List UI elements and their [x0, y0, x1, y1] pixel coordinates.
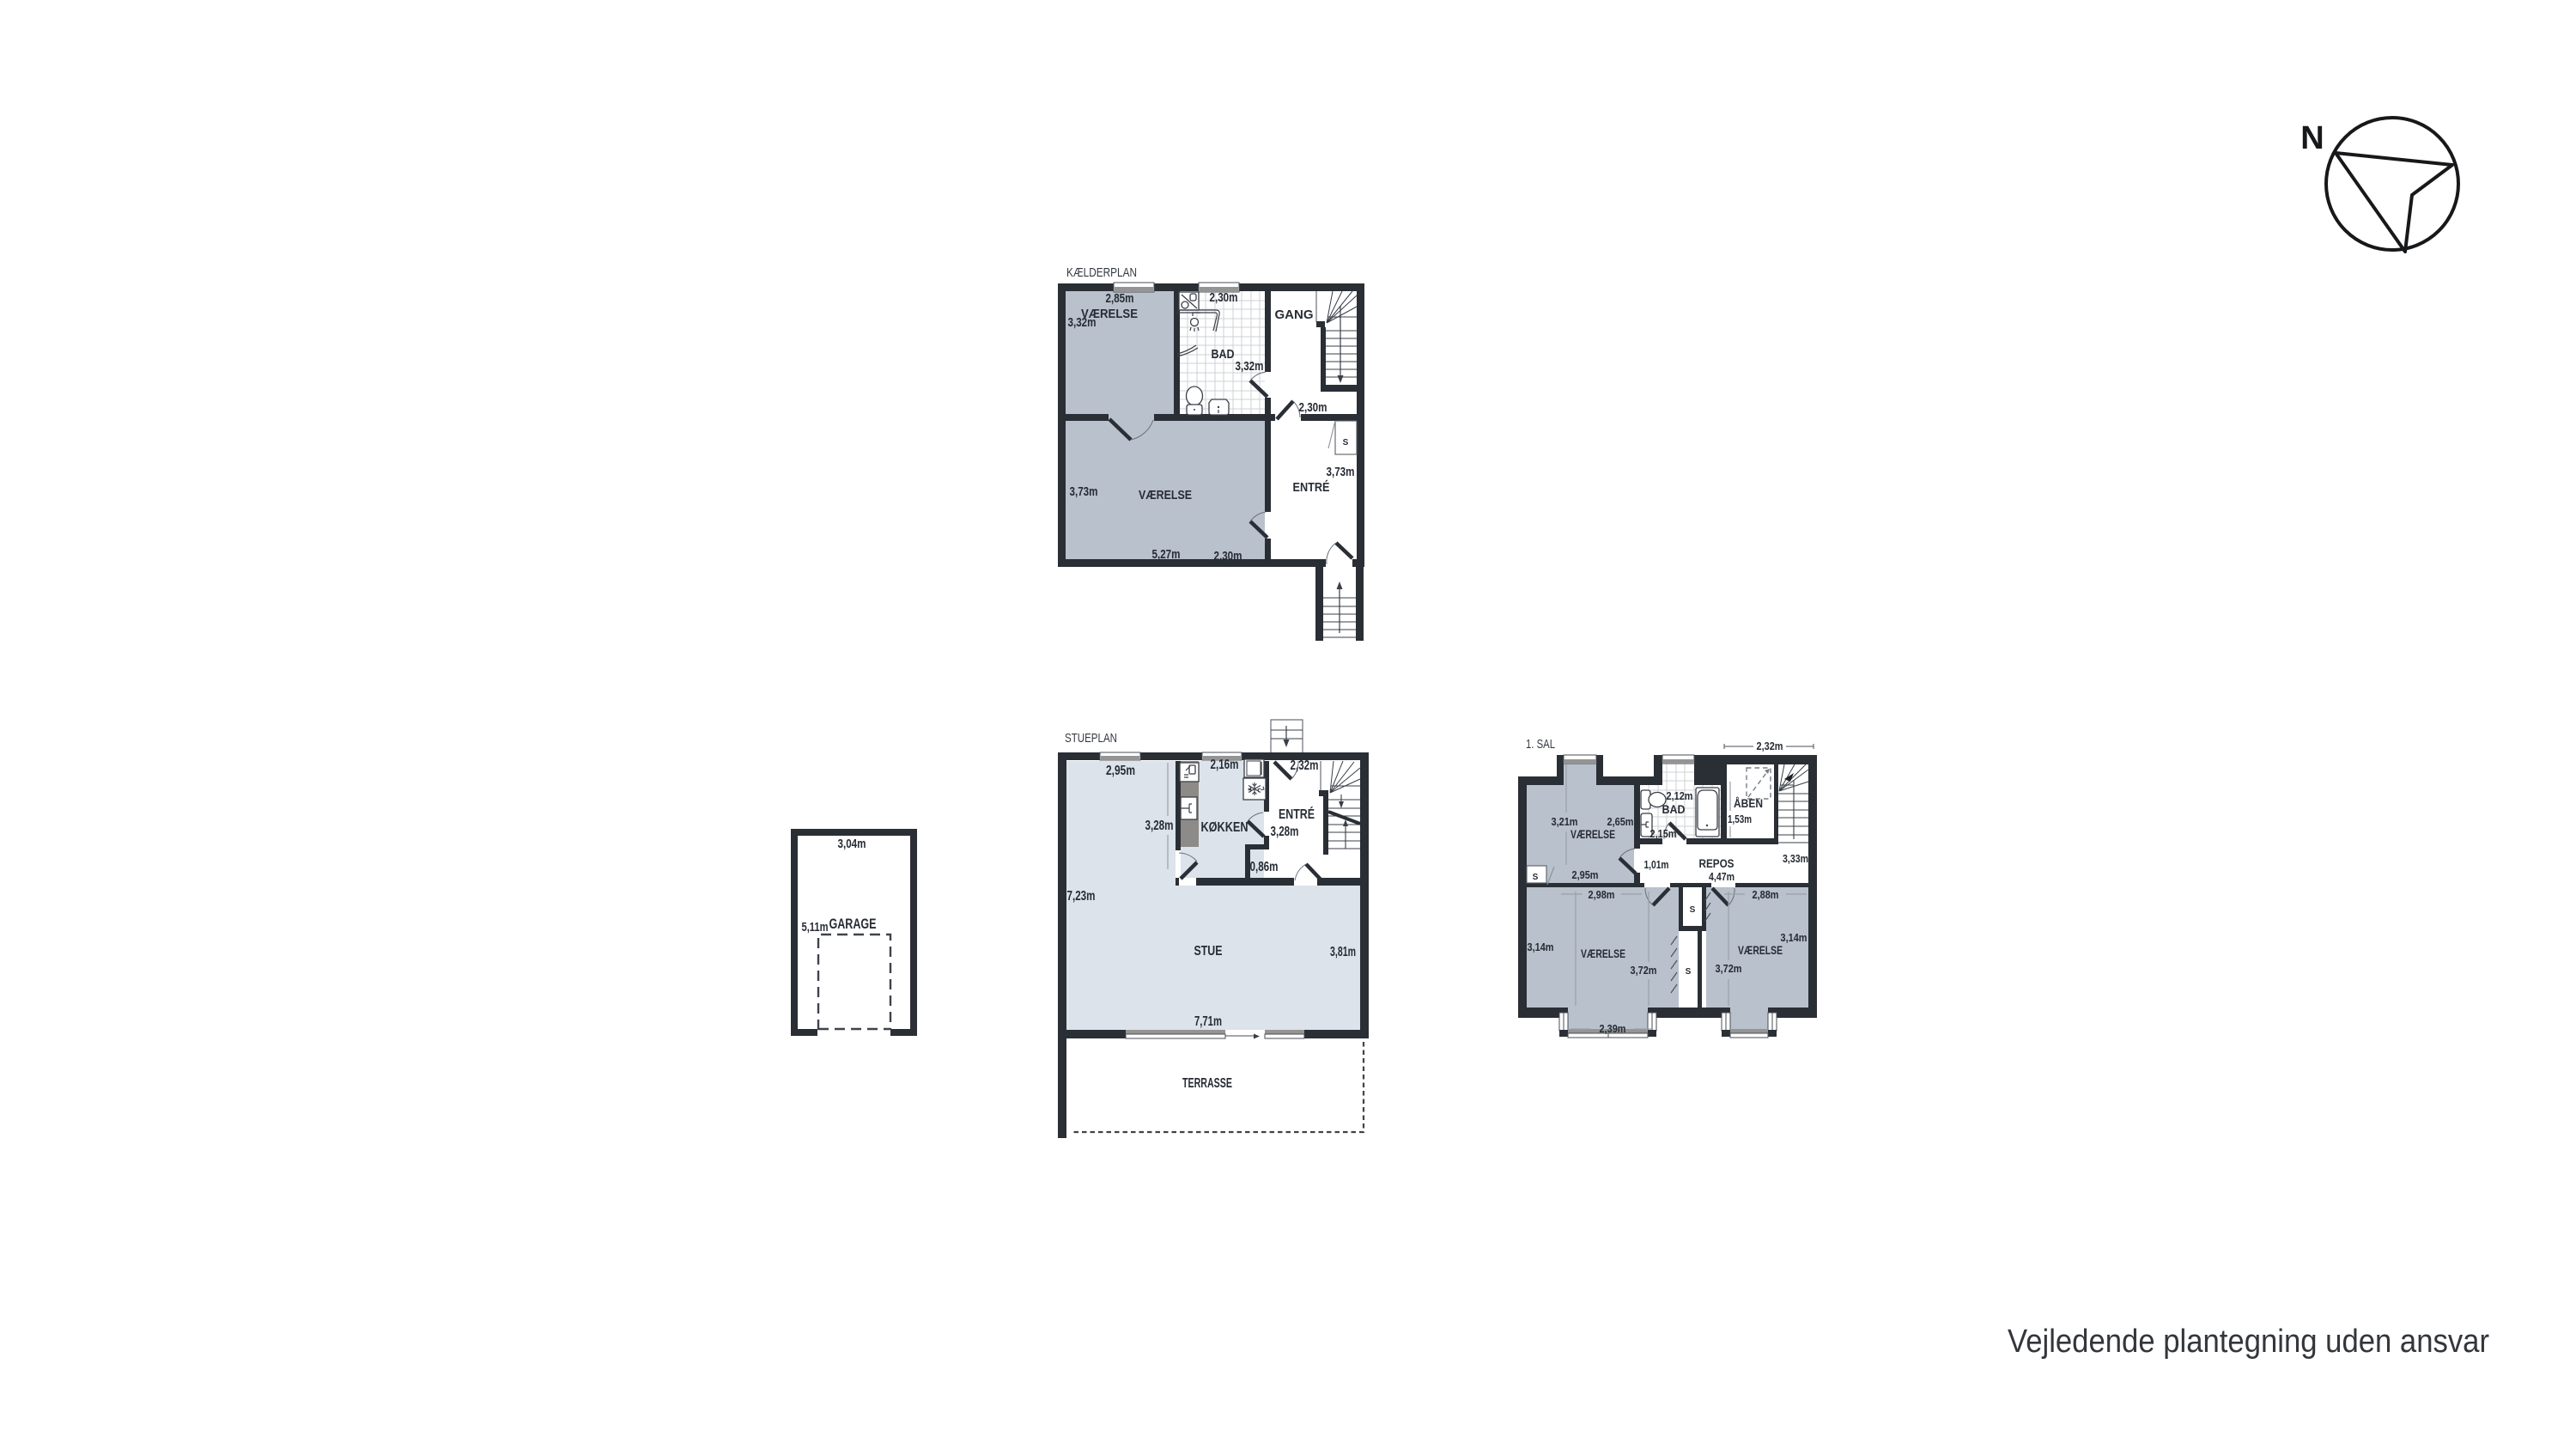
svg-text:S: S	[1343, 438, 1349, 447]
svg-text:2,98m: 2,98m	[1589, 888, 1615, 901]
svg-text:BAD: BAD	[1662, 803, 1686, 816]
svg-text:VÆRELSE: VÆRELSE	[1571, 828, 1615, 841]
svg-text:2,30m: 2,30m	[1299, 400, 1327, 415]
svg-text:3,81m: 3,81m	[1330, 945, 1356, 959]
svg-text:2,39m: 2,39m	[1600, 1022, 1626, 1035]
svg-text:2,85m: 2,85m	[1106, 291, 1134, 306]
svg-text:2,32m: 2,32m	[1757, 740, 1783, 752]
svg-text:ÅBEN: ÅBEN	[1734, 797, 1763, 810]
svg-text:KÆLDERPLAN: KÆLDERPLAN	[1066, 265, 1137, 280]
svg-text:3,32m: 3,32m	[1068, 315, 1097, 330]
svg-text:1,01m: 1,01m	[1644, 858, 1669, 871]
svg-text:2,88m: 2,88m	[1753, 888, 1779, 901]
svg-text:VÆRELSE: VÆRELSE	[1139, 488, 1192, 502]
svg-text:2,32m: 2,32m	[1291, 758, 1319, 773]
svg-text:S: S	[1686, 967, 1692, 977]
svg-text:5,27m: 5,27m	[1152, 547, 1181, 562]
svg-text:2,30m: 2,30m	[1210, 290, 1238, 305]
svg-text:3,21m: 3,21m	[1552, 815, 1578, 828]
svg-text:4,47m: 4,47m	[1709, 870, 1735, 883]
svg-text:GANG: GANG	[1275, 307, 1314, 322]
svg-text:N: N	[2300, 120, 2324, 156]
svg-text:2,30m: 2,30m	[1214, 549, 1242, 563]
svg-text:3,72m: 3,72m	[1716, 962, 1742, 975]
svg-text:0,86m: 0,86m	[1250, 860, 1279, 874]
svg-text:VÆRELSE: VÆRELSE	[1738, 944, 1783, 957]
svg-text:3,73m: 3,73m	[1070, 484, 1098, 499]
svg-text:3,28m: 3,28m	[1271, 825, 1299, 839]
svg-text:STUE: STUE	[1194, 944, 1223, 959]
svg-text:1. SAL: 1. SAL	[1526, 737, 1555, 752]
svg-text:ENTRÉ: ENTRÉ	[1279, 806, 1315, 822]
svg-text:2,16m: 2,16m	[1211, 758, 1239, 772]
svg-text:3,14m: 3,14m	[1781, 931, 1807, 944]
svg-text:3,32m: 3,32m	[1236, 359, 1264, 374]
svg-text:2,95m: 2,95m	[1106, 764, 1135, 778]
svg-text:3,04m: 3,04m	[838, 837, 866, 851]
svg-text:3,14m: 3,14m	[1528, 941, 1554, 953]
svg-text:VÆRELSE: VÆRELSE	[1581, 947, 1625, 960]
svg-text:3,28m: 3,28m	[1145, 819, 1174, 833]
svg-text:ENTRÉ: ENTRÉ	[1293, 480, 1330, 495]
svg-text:2,15m: 2,15m	[1650, 827, 1677, 840]
svg-text:7,71m: 7,71m	[1194, 1014, 1222, 1029]
svg-text:Vejledende plantegning uden an: Vejledende plantegning uden ansvar	[2008, 1324, 2489, 1360]
svg-text:STUEPLAN: STUEPLAN	[1065, 731, 1117, 746]
svg-text:KØKKEN: KØKKEN	[1201, 820, 1249, 835]
svg-text:1,53m: 1,53m	[1728, 813, 1752, 825]
svg-text:2,12m: 2,12m	[1667, 789, 1693, 802]
svg-text:3,72m: 3,72m	[1631, 964, 1657, 977]
svg-text:3,33m: 3,33m	[1783, 852, 1808, 865]
svg-text:S: S	[1690, 905, 1696, 915]
svg-text:7,23m: 7,23m	[1067, 889, 1096, 904]
svg-text:S: S	[1533, 873, 1539, 882]
svg-text:2,65m: 2,65m	[1607, 815, 1634, 828]
svg-text:TERRASSE: TERRASSE	[1182, 1076, 1232, 1091]
svg-text:2,95m: 2,95m	[1572, 868, 1599, 881]
svg-text:5,11m: 5,11m	[802, 920, 829, 935]
svg-text:REPOS: REPOS	[1699, 857, 1735, 870]
svg-text:GARAGE: GARAGE	[829, 916, 877, 932]
svg-text:BAD: BAD	[1212, 347, 1235, 362]
svg-text:3,73m: 3,73m	[1327, 465, 1355, 479]
